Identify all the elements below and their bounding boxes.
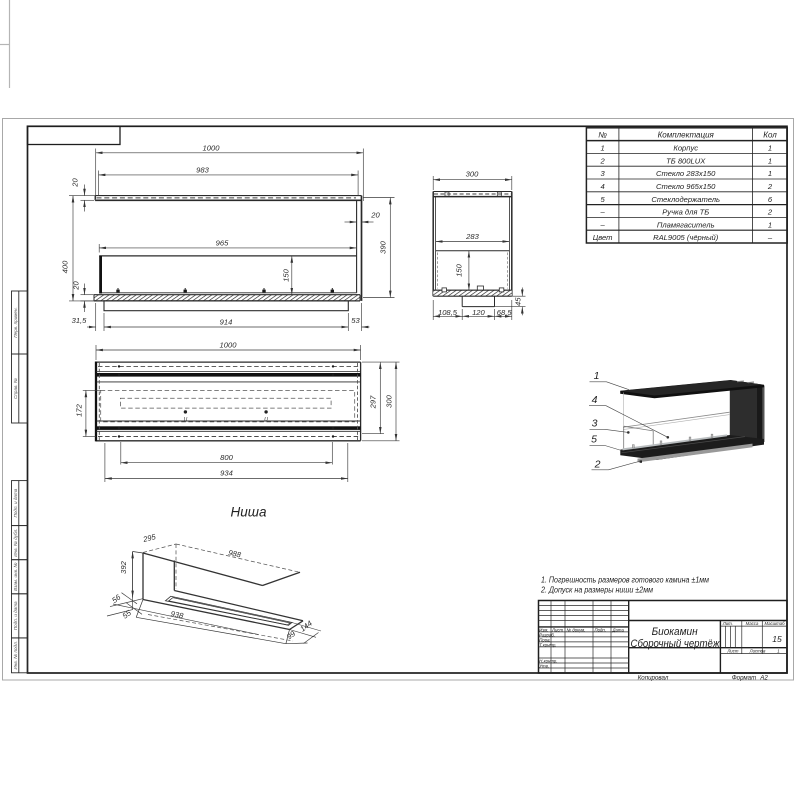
svg-text:№: № (598, 131, 607, 140)
svg-text:1: 1 (768, 156, 772, 165)
svg-text:68,5: 68,5 (497, 308, 513, 317)
svg-text:U: U (184, 417, 188, 423)
svg-text:31,5: 31,5 (72, 316, 88, 325)
svg-text:–: – (599, 208, 605, 217)
svg-text:Лит.: Лит. (722, 621, 733, 626)
svg-text:Ниша: Ниша (231, 504, 267, 520)
svg-text:20: 20 (71, 178, 80, 188)
svg-text:4: 4 (600, 182, 604, 191)
svg-text:Подп. и дата: Подп. и дата (13, 488, 18, 517)
svg-text:983: 983 (196, 166, 209, 175)
svg-text:Дата: Дата (612, 627, 625, 632)
svg-text:45: 45 (514, 297, 523, 306)
svg-text:Стекло 283х150: Стекло 283х150 (656, 169, 716, 178)
svg-text:392: 392 (119, 560, 128, 573)
svg-text:300: 300 (466, 170, 479, 179)
svg-text:150: 150 (454, 263, 463, 276)
svg-text:108,5: 108,5 (438, 308, 458, 317)
svg-text:934: 934 (220, 469, 233, 478)
svg-text:ТБ 800LUX: ТБ 800LUX (666, 156, 706, 165)
svg-text:20: 20 (370, 211, 380, 220)
svg-text:53: 53 (351, 316, 360, 325)
svg-text:Инв. № дубл.: Инв. № дубл. (13, 528, 18, 556)
svg-text:1000: 1000 (220, 341, 238, 350)
svg-text:Листов: Листов (749, 648, 766, 653)
svg-text:400: 400 (61, 260, 70, 273)
svg-text:390: 390 (379, 240, 388, 253)
svg-text:Стеклодержатель: Стеклодержатель (651, 195, 720, 204)
svg-text:Т.контр.: Т.контр. (539, 642, 556, 647)
svg-text:1000: 1000 (203, 143, 221, 152)
svg-text:150: 150 (282, 268, 291, 281)
svg-text:2: 2 (767, 182, 773, 191)
svg-text:Цвет: Цвет (593, 233, 613, 242)
svg-text:2. Допуск на размеры ниши ±2мм: 2. Допуск на размеры ниши ±2мм (540, 586, 654, 595)
svg-text:RAL9005 (чёрный): RAL9005 (чёрный) (653, 233, 719, 242)
svg-text:1: 1 (600, 144, 604, 153)
svg-text:Стекло 965х150: Стекло 965х150 (656, 182, 716, 191)
svg-text:U: U (264, 417, 268, 423)
svg-text:297: 297 (368, 395, 377, 409)
svg-text:914: 914 (220, 317, 233, 326)
svg-text:20: 20 (72, 281, 81, 291)
svg-text:Справ. №: Справ. № (13, 378, 18, 399)
svg-text:5: 5 (591, 434, 597, 446)
svg-text:2: 2 (599, 156, 605, 165)
svg-text:800: 800 (220, 453, 233, 462)
svg-text:Формат: Формат (732, 675, 757, 682)
svg-text:4: 4 (592, 394, 598, 406)
svg-text:Инв. № подл.: Инв. № подл. (13, 641, 18, 670)
svg-text:–: – (767, 233, 773, 242)
svg-text:300: 300 (384, 394, 393, 407)
svg-text:Сборочный чертёж: Сборочный чертёж (631, 638, 720, 650)
svg-text:Комплектация: Комплектация (658, 131, 715, 140)
svg-text:Пламягаситель: Пламягаситель (657, 220, 715, 229)
svg-text:Лист: Лист (726, 648, 738, 653)
svg-text:Утв.: Утв. (539, 663, 549, 668)
svg-text:–: – (599, 220, 605, 229)
svg-text:283: 283 (465, 232, 479, 241)
svg-text:Взам. инв. №: Взам. инв. № (13, 562, 18, 590)
svg-text:А2: А2 (759, 675, 768, 682)
svg-text:Подп.: Подп. (595, 627, 606, 632)
svg-text:1: 1 (768, 220, 772, 229)
svg-text:15: 15 (772, 634, 782, 644)
svg-text:Копировал: Копировал (638, 675, 669, 682)
svg-text:2: 2 (594, 458, 601, 470)
svg-text:1: 1 (768, 144, 772, 153)
svg-text:Перв. примен.: Перв. примен. (13, 307, 18, 338)
svg-text:Кол: Кол (763, 131, 777, 140)
svg-text:Подп. и дата: Подп. и дата (13, 601, 18, 630)
svg-text:Масса: Масса (746, 621, 759, 626)
svg-text:1: 1 (594, 370, 600, 382)
svg-text:Масштаб: Масштаб (764, 621, 785, 626)
svg-text:1: 1 (768, 169, 772, 178)
svg-text:172: 172 (74, 403, 83, 416)
svg-text:965: 965 (216, 239, 229, 248)
svg-text:2: 2 (767, 208, 773, 217)
svg-text:Корпус: Корпус (673, 144, 698, 153)
svg-text:Биокамин: Биокамин (652, 626, 698, 638)
svg-text:№ докум.: № докум. (567, 627, 586, 632)
svg-text:3: 3 (592, 418, 598, 430)
svg-text:1. Погрешность размеров готово: 1. Погрешность размеров готового камина … (541, 575, 710, 584)
svg-text:Ручка для ТБ: Ручка для ТБ (662, 208, 709, 217)
svg-text:120: 120 (472, 308, 485, 317)
